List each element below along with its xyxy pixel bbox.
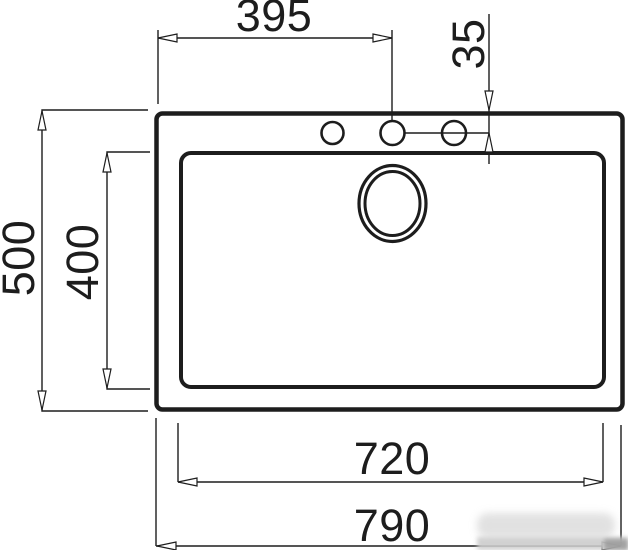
arrow-720-left xyxy=(178,478,197,486)
dim-line-400 xyxy=(107,152,150,389)
watermark-blur xyxy=(477,513,628,550)
label-500: 500 xyxy=(0,220,44,297)
arrow-395-right xyxy=(373,34,392,42)
arrow-400-bottom xyxy=(103,369,111,388)
tap-hole-center xyxy=(381,121,405,145)
arrow-500-top xyxy=(38,111,46,130)
arrow-720-right xyxy=(584,478,603,486)
sink-outline-group xyxy=(157,114,623,410)
arrow-500-bottom xyxy=(38,391,46,410)
sink-bowl-outline xyxy=(181,153,604,387)
label-720: 720 xyxy=(354,433,431,484)
label-400: 400 xyxy=(57,224,108,301)
technical-drawing-canvas: 395 35 500 400 720 790 xyxy=(0,0,628,550)
label-35: 35 xyxy=(443,18,494,69)
label-790: 790 xyxy=(354,500,431,550)
arrow-35-top xyxy=(485,91,493,110)
arrow-400-top xyxy=(103,153,111,172)
tap-hole-left xyxy=(322,122,344,144)
label-395: 395 xyxy=(236,0,313,41)
arrow-790-left xyxy=(157,542,176,550)
sink-drawing-svg: 395 35 500 400 720 790 xyxy=(0,0,628,550)
arrow-395-left xyxy=(158,34,177,42)
